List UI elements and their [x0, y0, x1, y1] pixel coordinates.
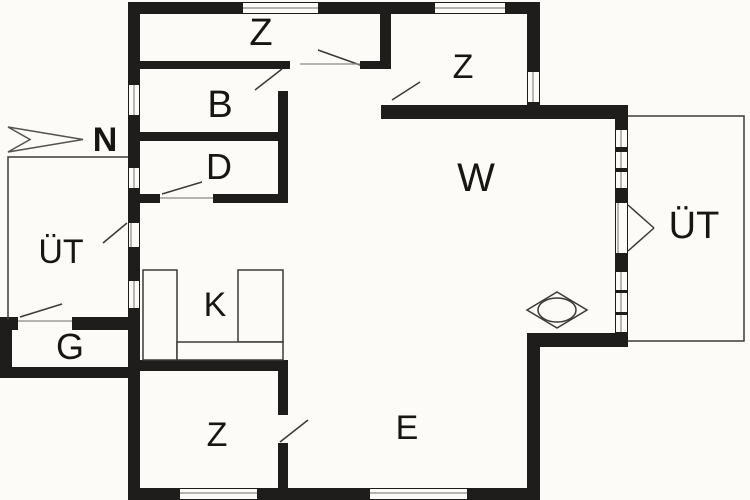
room-label-bathroom: B — [207, 86, 232, 124]
room-label-d-room: D — [206, 149, 232, 185]
room-label-dining: E — [396, 411, 419, 445]
door-swing-terrace-left — [103, 223, 127, 243]
north-label: N — [93, 123, 118, 157]
room-label-bedroom-top-right: Z — [453, 50, 474, 84]
room-label-storage: G — [56, 329, 84, 365]
door-swing-terrace-right-upper — [628, 205, 654, 228]
room-label-kitchen: K — [204, 288, 227, 322]
thin-line-overlay — [0, 0, 750, 500]
door-swing-bedroom3 — [280, 420, 308, 442]
stove-icon — [527, 292, 587, 328]
door-swing-terrace-right-lower — [628, 228, 654, 251]
room-label-terrace-right: ÜT — [669, 207, 720, 245]
room-label-bedroom-top-left: Z — [249, 14, 272, 52]
room-label-living: W — [457, 158, 495, 198]
door-swing-bathroom — [255, 69, 282, 90]
door-swing-bedroom1 — [318, 50, 360, 65]
floor-plan: Z Z B D N ÜT G K Z E W ÜT — [0, 0, 750, 500]
room-label-bedroom-bottom: Z — [207, 418, 228, 452]
door-swing-storage — [20, 304, 62, 317]
north-arrow-icon — [8, 127, 83, 152]
room-label-terrace-left: ÜT — [38, 235, 83, 269]
door-swing-d-room — [162, 182, 202, 194]
door-swing-bedroom2 — [392, 82, 420, 100]
